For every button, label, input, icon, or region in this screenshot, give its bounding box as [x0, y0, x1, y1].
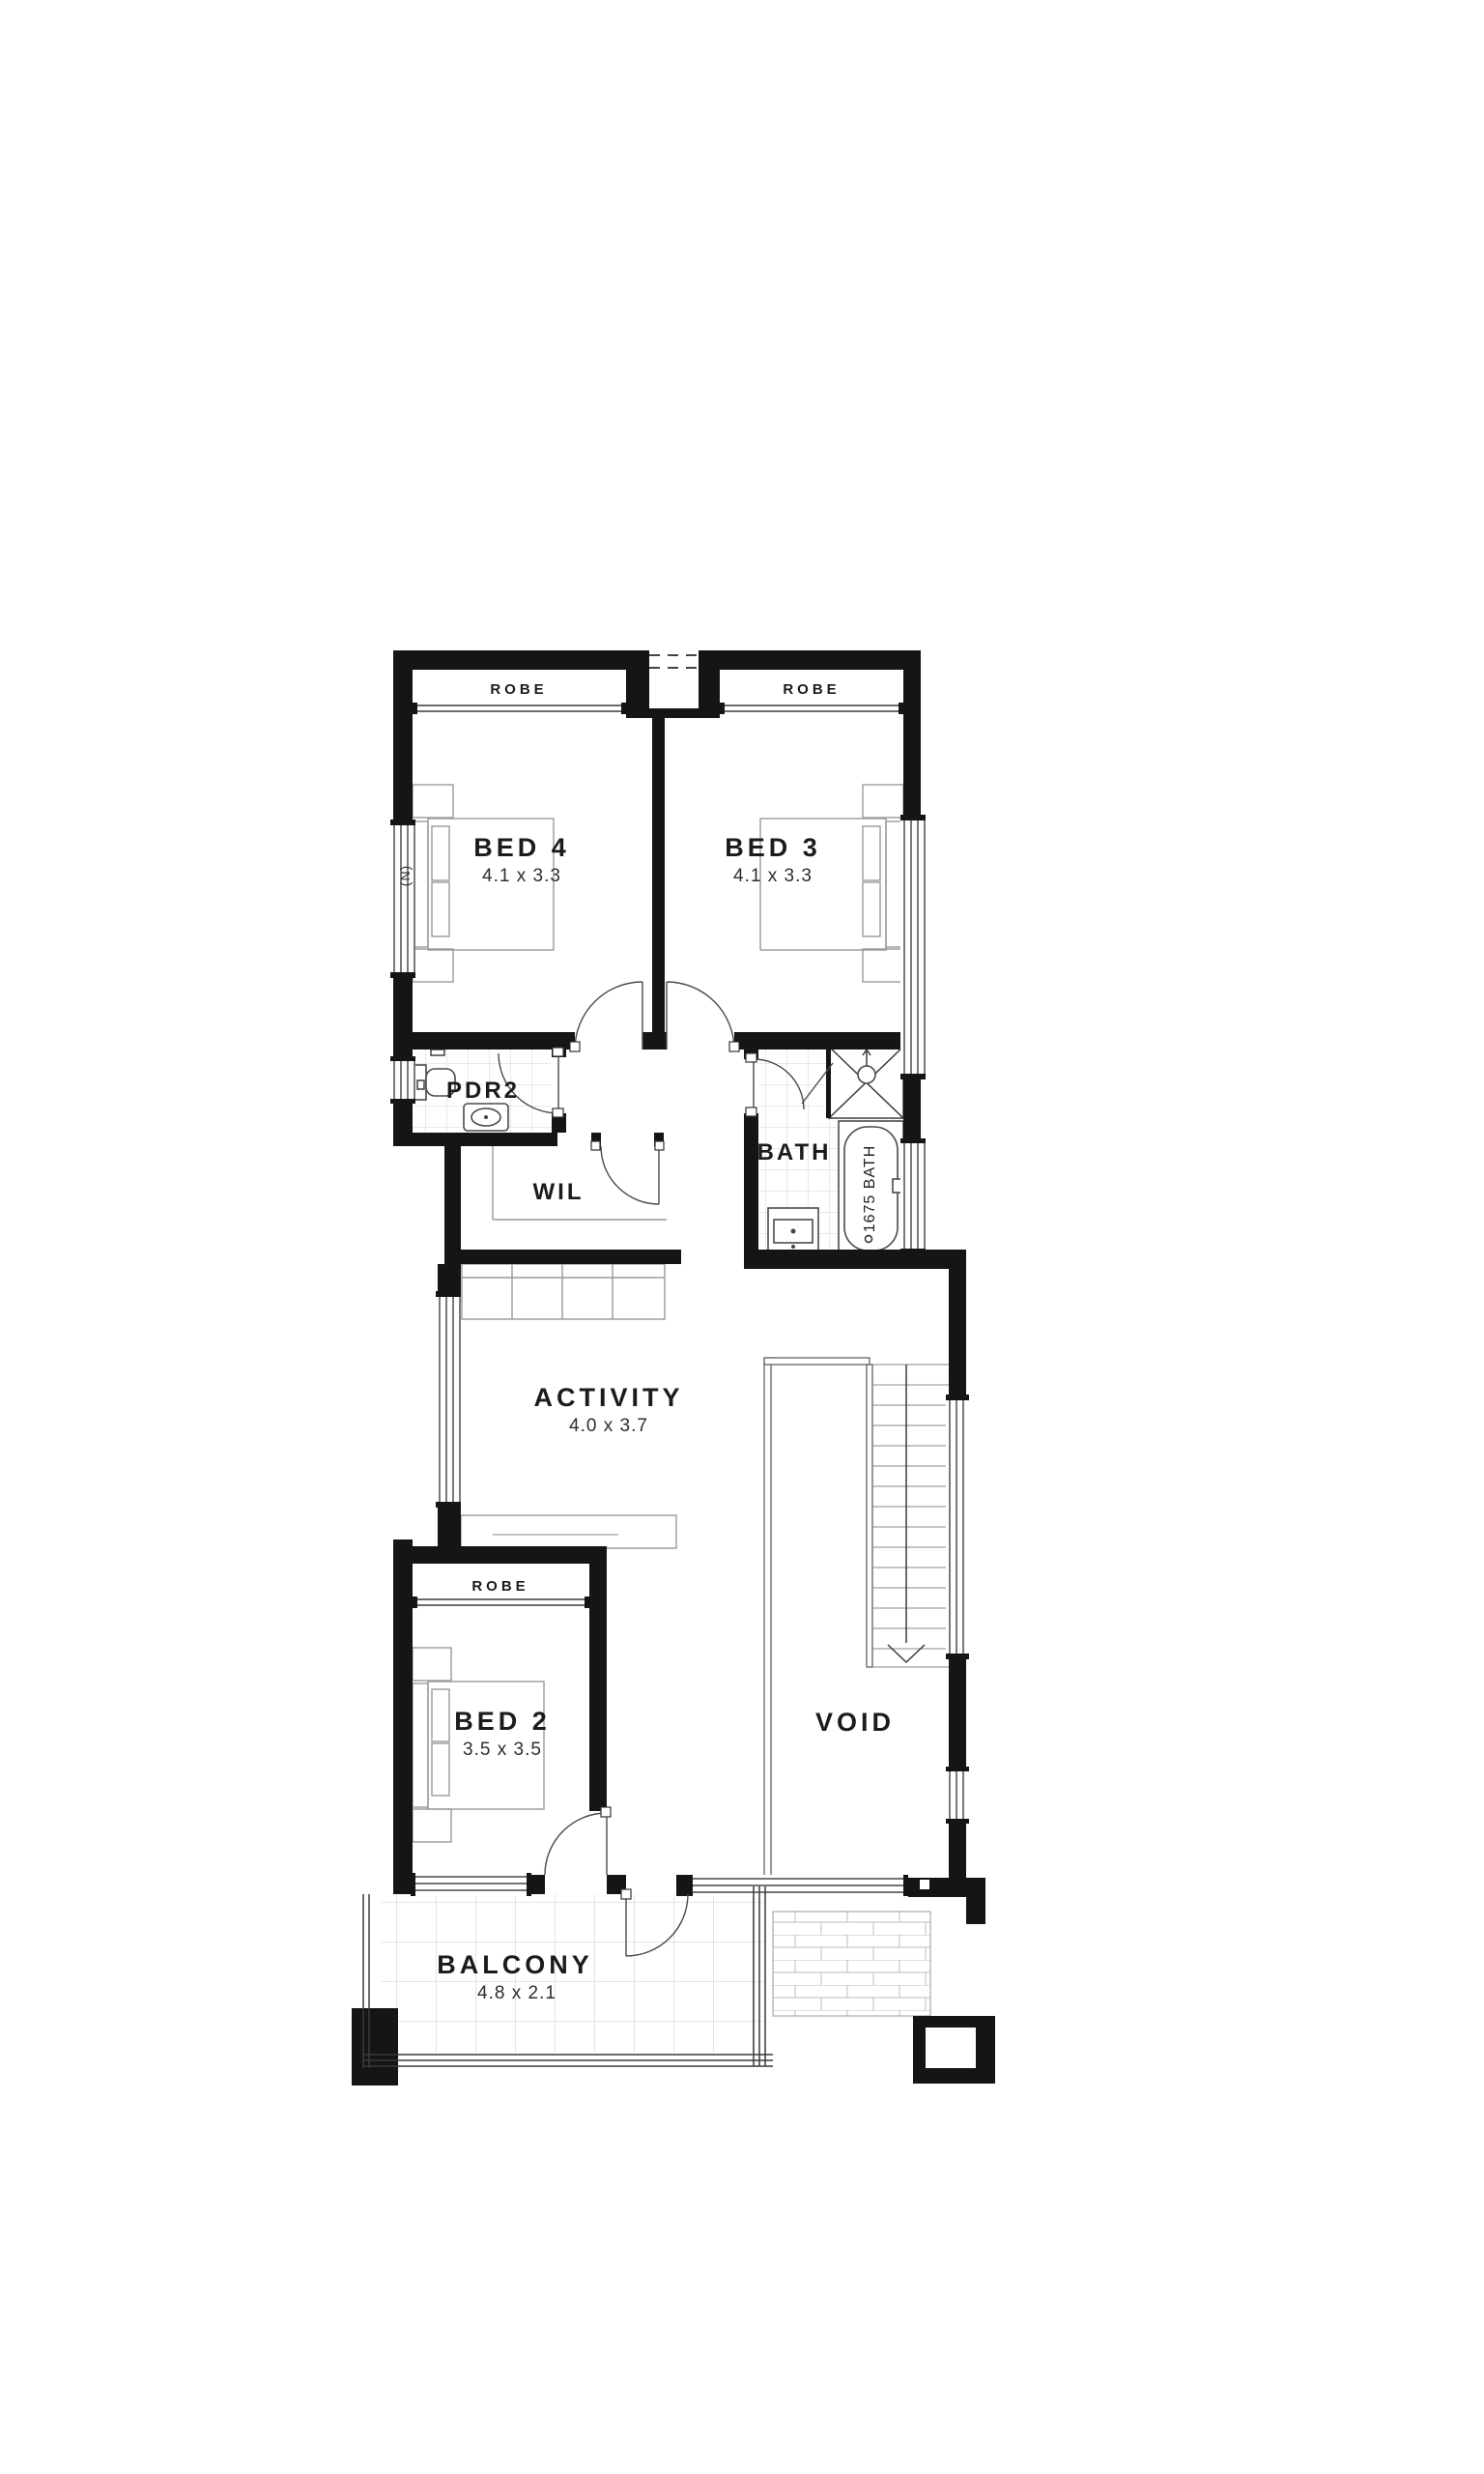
wall-bed2-right: [589, 1546, 607, 1811]
pillow: [432, 826, 449, 880]
storage-unit: [462, 1264, 665, 1319]
window-activity-left: [436, 1291, 461, 1508]
storage-divisions: [462, 1264, 665, 1319]
bed2-robe-label: ROBE: [471, 1578, 528, 1595]
toilet-roll-holder: [431, 1050, 444, 1055]
niche-wall-right: [699, 650, 720, 718]
desk: [461, 1515, 676, 1548]
window-void-balcony: [688, 1875, 908, 1896]
wil-door: [591, 1141, 664, 1204]
balcony-pier-left: [352, 2008, 398, 2086]
stair-stringer: [867, 1365, 872, 1667]
bed3-door: [667, 982, 739, 1051]
wall-bed4-bed3: [652, 718, 665, 1032]
labels: ROBE ROBE BED 4 4.1 x 3.3 BED 3 4.1 x 3.…: [397, 681, 895, 2003]
bath-wall-bottom: [744, 1250, 966, 1269]
vanity-drain: [791, 1229, 796, 1234]
stair-down-arrow: [888, 1645, 925, 1662]
vanity-tap: [791, 1245, 795, 1249]
wall-left-bed2: [393, 1539, 413, 1894]
wall-left-upper: [393, 650, 413, 821]
window-bed3-right: [900, 815, 926, 1079]
bedside-table: [863, 785, 903, 818]
activity-wall-stub-bottom: [438, 1506, 461, 1548]
bedside-table: [413, 1648, 451, 1681]
overhead-dashed-line: [649, 655, 699, 668]
bed2-door: [545, 1807, 611, 1875]
bed-headboard: [413, 1683, 428, 1807]
wil-wall-bottom: [444, 1250, 681, 1264]
bedside-table: [413, 785, 453, 818]
niche-wall-bottom: [626, 708, 720, 718]
pillow: [432, 882, 449, 936]
window-bath-right: [900, 1138, 926, 1253]
pillow: [863, 826, 880, 880]
bathtub-label-group: 1675 BATH: [862, 1145, 878, 1233]
bathtub-label: 1675 BATH: [862, 1145, 878, 1233]
wall-top-left: [393, 650, 626, 670]
activity-dims: 4.0 x 3.7: [569, 1416, 648, 1436]
window-bed4-left: [390, 820, 415, 978]
niche-wall-left: [626, 650, 649, 718]
bed3-robe-label: ROBE: [783, 681, 840, 698]
wall-right-upper: [903, 650, 921, 817]
bed4-dims: 4.1 x 3.3: [482, 866, 561, 886]
balcony-edge-bottom: [363, 2055, 773, 2066]
wall-pdr2-wil: [393, 1133, 557, 1146]
wall-bed2-robe-top: [393, 1546, 607, 1564]
wall-bottom-post: [531, 1875, 545, 1894]
void-balustrade: [764, 1358, 771, 1878]
window-note-group: (N): [397, 865, 413, 886]
window-stair-right: [946, 1395, 969, 1659]
wil-label: WIL: [533, 1179, 585, 1205]
shower-rose: [858, 1066, 875, 1083]
wall-right-stair-upper: [949, 1269, 966, 1396]
bedside-table: [863, 949, 903, 982]
window-void-right: [946, 1767, 969, 1824]
staircase: [764, 1358, 949, 1878]
bed2-label: BED 2: [454, 1707, 551, 1736]
wall-stub-right: [966, 1897, 985, 1924]
wall-hall-stub: [642, 1032, 667, 1050]
shower-partition: [826, 1047, 831, 1118]
wall-bottom-post: [676, 1875, 688, 1896]
floorplan-drawing: ROBE ROBE BED 4 4.1 x 3.3 BED 3 4.1 x 3.…: [0, 0, 1484, 2474]
bed4-robe-label: ROBE: [490, 681, 547, 698]
activity-label: ACTIVITY: [533, 1383, 683, 1412]
toilet-button: [417, 1080, 424, 1089]
pdr2-label: PDR2: [446, 1078, 520, 1104]
balustrade-return: [764, 1358, 870, 1365]
wall-right-stair-lower: [949, 1657, 966, 1769]
wall-bottom-seg: [393, 1875, 413, 1894]
wall-right-mid: [903, 1078, 921, 1140]
pier-right-core: [926, 2028, 976, 2068]
wil-wall-left: [444, 1146, 461, 1264]
pillow: [432, 1743, 449, 1796]
void-label: VOID: [815, 1708, 895, 1737]
basin-drain: [484, 1115, 488, 1119]
bed4-door: [570, 982, 642, 1051]
wall-notch: [920, 1880, 929, 1889]
bed3-dims: 4.1 x 3.3: [733, 866, 813, 886]
window-pdr2-left: [390, 1056, 415, 1104]
balcony-dims: 4.8 x 2.1: [477, 1983, 556, 2003]
bed2-dims: 3.5 x 3.5: [463, 1740, 542, 1760]
wall-bed4-pdr2: [393, 1032, 575, 1050]
window-bed2-balcony: [411, 1873, 531, 1896]
activity-wall-stub-top: [438, 1264, 461, 1293]
wall-top-right: [720, 650, 921, 670]
activity-joinery: [461, 1146, 676, 1548]
bedside-table: [413, 949, 453, 982]
bed3-label: BED 3: [725, 833, 821, 862]
pillow: [863, 882, 880, 936]
wall-bed3-bath: [734, 1032, 923, 1050]
bed3-robe-doors: [720, 705, 903, 711]
stair-treads: [872, 1365, 949, 1649]
floorplan-page: ROBE ROBE BED 4 4.1 x 3.3 BED 3 4.1 x 3.…: [0, 0, 1484, 2474]
bed4-label: BED 4: [473, 833, 570, 862]
bed4-robe-doors: [413, 705, 626, 711]
paved-area: [773, 1912, 930, 2016]
window-note: (N): [397, 865, 413, 886]
bedside-table: [413, 1809, 451, 1842]
bath-label: BATH: [757, 1139, 832, 1165]
pillow: [432, 1689, 449, 1741]
balcony-label: BALCONY: [437, 1950, 593, 1979]
bed-headboard: [886, 821, 901, 947]
bath-wall-left: [744, 1113, 758, 1263]
bed2-robe-doors: [413, 1599, 589, 1605]
